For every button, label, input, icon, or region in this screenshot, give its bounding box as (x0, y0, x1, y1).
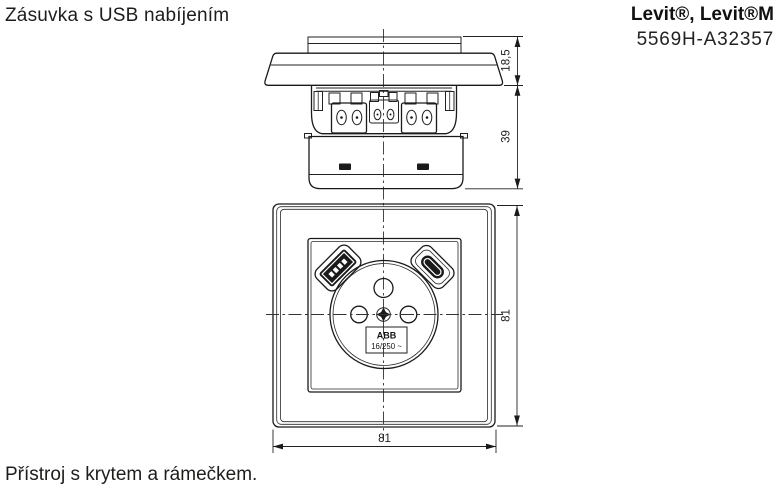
cover-plate-side (308, 37, 461, 54)
dim-label-body-depth: 39 (501, 130, 513, 143)
front-view-drawing: ABB 16/250 ~ 81 81 (266, 204, 523, 453)
socket-mechanism (312, 86, 457, 134)
body-clip-left (339, 164, 351, 171)
rating-label-value: 16/250 ~ (371, 342, 402, 351)
mounting-body-side (305, 134, 468, 189)
side-view-drawing: 18,5 39 (265, 37, 523, 189)
rating-label-brand: ABB (377, 331, 397, 341)
body-clip-right (417, 164, 429, 171)
usb-c-port (408, 243, 457, 292)
technical-drawing: 18,5 39 (0, 0, 778, 496)
dim-label-height: 81 (501, 309, 513, 322)
front-view-dimensions: 81 81 (273, 206, 523, 454)
dim-label-frame-height: 18,5 (501, 49, 513, 71)
rating-label: ABB 16/250 ~ (366, 327, 407, 353)
dim-label-width: 81 (378, 433, 391, 445)
side-view-dimensions: 18,5 39 (463, 37, 523, 189)
datasheet-page: Zásuvka s USB nabíjením Levit®, Levit®M … (0, 0, 778, 496)
